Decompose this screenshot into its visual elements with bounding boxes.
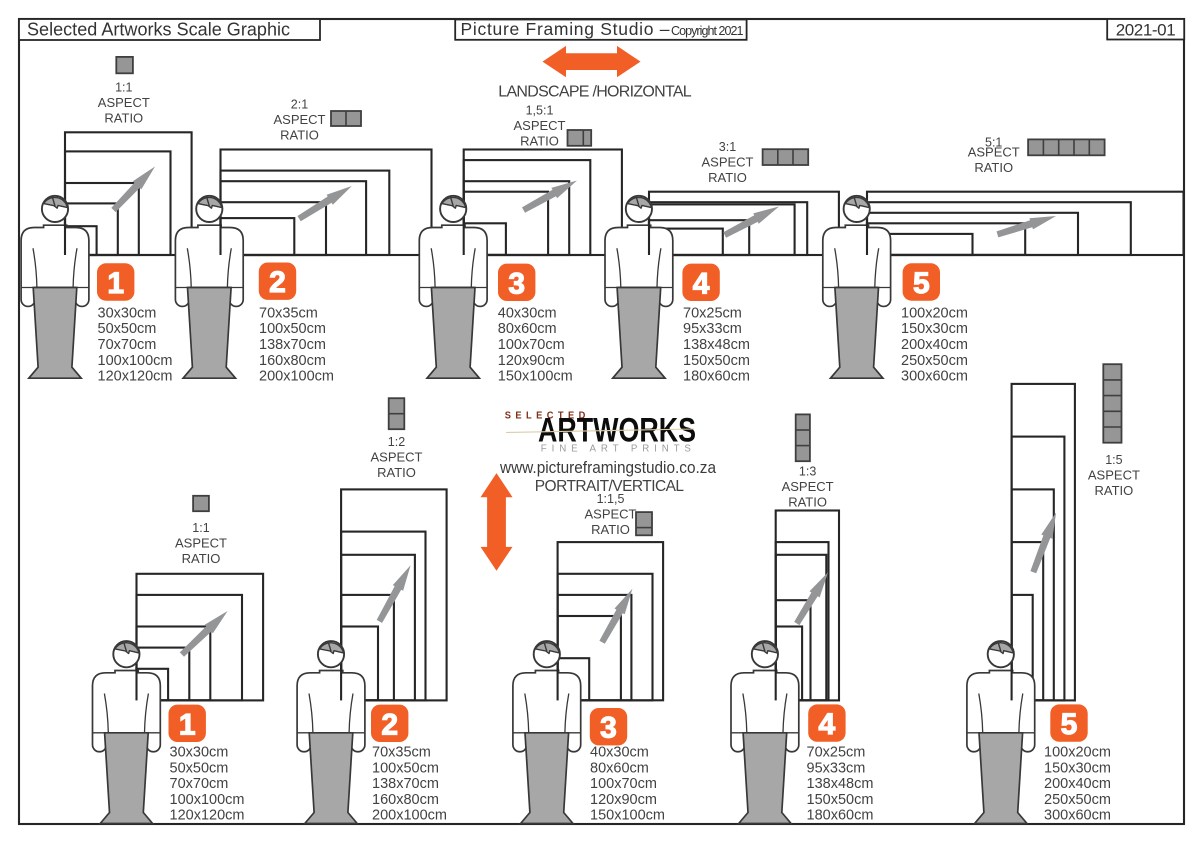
svg-text:100x20cm: 100x20cm	[901, 305, 968, 321]
svg-text:200x40cm: 200x40cm	[901, 337, 968, 353]
svg-text:1:2: 1:2	[388, 435, 405, 449]
svg-text:RATIO: RATIO	[377, 465, 416, 480]
svg-text:www.pictureframingstudio.co.za: www.pictureframingstudio.co.za	[499, 458, 716, 477]
svg-text:150x100cm: 150x100cm	[590, 808, 665, 824]
svg-text:RATIO: RATIO	[591, 522, 630, 537]
svg-text:200x100cm: 200x100cm	[372, 808, 447, 824]
svg-text:160x80cm: 160x80cm	[372, 792, 439, 808]
svg-text:RATIO: RATIO	[974, 160, 1013, 175]
svg-text:2: 2	[381, 708, 398, 741]
svg-text:200x40cm: 200x40cm	[1044, 776, 1111, 792]
svg-text:70x35cm: 70x35cm	[372, 745, 431, 761]
svg-text:30x30cm: 30x30cm	[170, 745, 229, 761]
svg-text:40x30cm: 40x30cm	[498, 305, 557, 321]
svg-text:RATIO: RATIO	[104, 111, 143, 126]
svg-text:180x60cm: 180x60cm	[683, 369, 750, 385]
svg-text:1: 1	[179, 708, 196, 741]
svg-text:138x48cm: 138x48cm	[807, 776, 874, 792]
svg-text:3: 3	[508, 267, 525, 300]
svg-text:2:1: 2:1	[291, 98, 308, 112]
svg-text:150x30cm: 150x30cm	[901, 321, 968, 337]
svg-text:3: 3	[600, 712, 617, 745]
svg-text:40x30cm: 40x30cm	[590, 745, 649, 761]
svg-text:RATIO: RATIO	[788, 495, 827, 510]
svg-text:100x100cm: 100x100cm	[98, 353, 173, 369]
svg-text:138x70cm: 138x70cm	[259, 337, 326, 353]
svg-text:4: 4	[693, 267, 710, 300]
svg-text:50x50cm: 50x50cm	[98, 321, 157, 337]
svg-text:120x90cm: 120x90cm	[498, 353, 565, 369]
svg-text:ASPECT: ASPECT	[968, 144, 1020, 159]
svg-text:1: 1	[107, 267, 124, 300]
svg-text:ASPECT: ASPECT	[782, 479, 834, 494]
svg-text:30x30cm: 30x30cm	[98, 305, 157, 321]
svg-text:5: 5	[1061, 708, 1078, 741]
svg-text:300x60cm: 300x60cm	[1044, 808, 1111, 824]
svg-text:70x35cm: 70x35cm	[259, 305, 318, 321]
svg-text:150x50cm: 150x50cm	[807, 792, 874, 808]
svg-text:250x50cm: 250x50cm	[901, 353, 968, 369]
svg-text:80x60cm: 80x60cm	[498, 321, 557, 337]
svg-text:4: 4	[819, 708, 836, 741]
svg-text:200x100cm: 200x100cm	[259, 369, 334, 385]
svg-text:1:1: 1:1	[192, 521, 209, 535]
svg-text:70x25cm: 70x25cm	[807, 745, 866, 761]
svg-text:100x50cm: 100x50cm	[259, 321, 326, 337]
svg-text:ASPECT: ASPECT	[370, 450, 422, 465]
svg-text:150x50cm: 150x50cm	[683, 353, 750, 369]
svg-text:150x100cm: 150x100cm	[498, 369, 573, 385]
svg-text:300x60cm: 300x60cm	[901, 369, 968, 385]
svg-text:120x120cm: 120x120cm	[98, 369, 173, 385]
svg-text:ASPECT: ASPECT	[701, 155, 753, 170]
svg-text:250x50cm: 250x50cm	[1044, 792, 1111, 808]
svg-text:Copyright 2021: Copyright 2021	[671, 24, 744, 38]
svg-text:2021-01: 2021-01	[1116, 21, 1176, 40]
svg-text:1:3: 1:3	[799, 465, 816, 479]
svg-text:LANDSCAPE /HORIZONTAL: LANDSCAPE /HORIZONTAL	[498, 84, 691, 101]
svg-text:160x80cm: 160x80cm	[259, 353, 326, 369]
svg-text:PORTRAIT/VERTICAL: PORTRAIT/VERTICAL	[535, 478, 685, 495]
svg-text:95x33cm: 95x33cm	[683, 321, 742, 337]
svg-text:ASPECT: ASPECT	[584, 507, 636, 522]
svg-text:RATIO: RATIO	[520, 134, 559, 149]
svg-text:120x90cm: 120x90cm	[590, 792, 657, 808]
svg-text:120x120cm: 120x120cm	[170, 808, 245, 824]
svg-text:2: 2	[269, 266, 286, 299]
svg-text:ASPECT: ASPECT	[273, 112, 325, 127]
svg-text:180x60cm: 180x60cm	[807, 808, 874, 824]
svg-text:95x33cm: 95x33cm	[807, 760, 866, 776]
svg-text:70x70cm: 70x70cm	[170, 776, 229, 792]
svg-text:3:1: 3:1	[719, 140, 736, 154]
svg-text:Selected Artworks Scale Graphi: Selected Artworks Scale Graphic	[27, 20, 290, 40]
svg-text:Picture Framing Studio –: Picture Framing Studio –	[461, 19, 670, 39]
svg-text:70x70cm: 70x70cm	[98, 337, 157, 353]
svg-text:ASPECT: ASPECT	[98, 95, 150, 110]
svg-text:RATIO: RATIO	[280, 128, 319, 143]
svg-text:1:5: 1:5	[1105, 453, 1122, 467]
svg-text:100x20cm: 100x20cm	[1044, 745, 1111, 761]
svg-text:138x48cm: 138x48cm	[683, 337, 750, 353]
svg-text:RATIO: RATIO	[1095, 483, 1134, 498]
svg-text:100x70cm: 100x70cm	[498, 337, 565, 353]
svg-text:100x100cm: 100x100cm	[170, 792, 245, 808]
svg-text:70x25cm: 70x25cm	[683, 305, 742, 321]
svg-text:ASPECT: ASPECT	[175, 536, 227, 551]
svg-text:50x50cm: 50x50cm	[170, 760, 229, 776]
svg-text:ASPECT: ASPECT	[513, 118, 565, 133]
svg-text:FINE ART PRINTS: FINE ART PRINTS	[541, 444, 696, 455]
svg-text:138x70cm: 138x70cm	[372, 776, 439, 792]
svg-text:RATIO: RATIO	[182, 551, 221, 566]
svg-text:1:1: 1:1	[115, 81, 132, 95]
svg-text:150x30cm: 150x30cm	[1044, 760, 1111, 776]
svg-text:RATIO: RATIO	[708, 170, 747, 185]
svg-text:100x70cm: 100x70cm	[590, 776, 657, 792]
svg-text:80x60cm: 80x60cm	[590, 760, 649, 776]
svg-text:5: 5	[913, 267, 930, 300]
svg-text:1,5:1: 1,5:1	[526, 104, 554, 118]
svg-text:100x50cm: 100x50cm	[372, 760, 439, 776]
svg-text:ASPECT: ASPECT	[1088, 468, 1140, 483]
